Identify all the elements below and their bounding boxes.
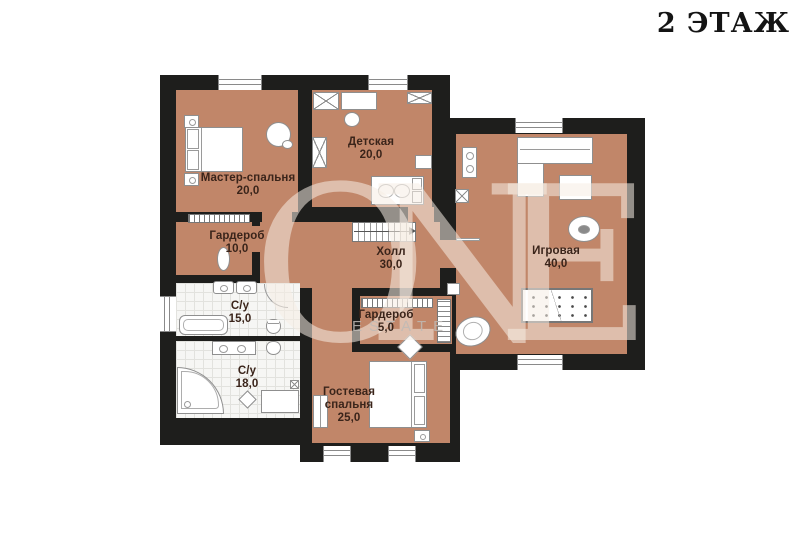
sofa-seat	[520, 140, 590, 150]
duct-icon	[455, 189, 469, 203]
window	[218, 75, 262, 90]
sink-bowl	[237, 345, 246, 353]
pillow	[412, 178, 422, 190]
window	[160, 296, 176, 332]
stair-arrow-icon	[409, 227, 416, 235]
bed-icon	[371, 176, 424, 205]
window	[388, 446, 416, 462]
bed-icon	[185, 127, 243, 172]
bean-bag-fold	[460, 319, 485, 343]
door-opening-playroom	[440, 240, 456, 268]
room-name: Гардероб	[187, 230, 287, 243]
sink-icon	[213, 281, 234, 294]
room-area: 15,0	[190, 313, 290, 326]
cushion	[578, 225, 590, 234]
room-name: С/у	[197, 365, 297, 378]
room-area: 30,0	[341, 259, 441, 272]
room-name: Холл	[341, 246, 441, 259]
page-title: 2 ЭТАЖ	[657, 8, 790, 39]
room-area: 40,0	[506, 258, 606, 271]
window	[323, 446, 351, 462]
blanket	[378, 184, 394, 198]
door-opening-su15	[262, 275, 288, 283]
window	[515, 118, 563, 133]
room-name: Игровая	[506, 245, 606, 258]
coffee-table-icon	[559, 175, 592, 200]
door-leaf	[456, 238, 480, 241]
room-area: 10,0	[187, 243, 287, 256]
door-opening-master	[262, 212, 292, 222]
room-name: Мастер-спальня	[188, 172, 308, 185]
pillow	[414, 364, 425, 393]
room-area: 20,0	[188, 185, 308, 198]
door-opening-detskaya	[408, 207, 434, 222]
wardrobe-icon	[313, 92, 339, 110]
room-label-guest: Гостевая спальня 25,0	[310, 386, 388, 426]
window	[368, 75, 408, 90]
sofa-icon	[517, 137, 593, 164]
room-label-su18: С/у 18,0	[197, 365, 297, 391]
room-area: 18,0	[197, 378, 297, 391]
cabinet-icon	[261, 390, 299, 413]
hanger-rack-icon	[188, 214, 250, 223]
sink-bowl	[220, 285, 228, 292]
pillow	[187, 150, 199, 170]
sofa-icon	[517, 163, 544, 197]
shelf-icon	[462, 147, 477, 178]
room-label-wardrobe5: Гардероб 5,0	[336, 309, 436, 335]
blanket	[201, 128, 242, 171]
room-label-hall: Холл 30,0	[341, 246, 441, 272]
room-name: Гардероб	[336, 309, 436, 322]
decor-circle	[466, 165, 474, 173]
room-label-wardrobe10: Гардероб 10,0	[187, 230, 287, 256]
shelf-icon	[437, 299, 451, 343]
pillow	[187, 129, 199, 149]
blanket	[394, 184, 410, 198]
pillow	[412, 191, 422, 203]
sink-icon	[236, 281, 257, 294]
billiard-table-icon	[521, 288, 593, 323]
egg-chair-icon	[568, 216, 600, 242]
drain	[184, 401, 191, 408]
ottoman-icon	[282, 140, 293, 149]
room-name: Детская	[321, 136, 421, 149]
wardrobe-icon	[407, 92, 432, 104]
staircase-icon	[352, 222, 416, 242]
room-label-su15: С/у 15,0	[190, 300, 290, 326]
floor-plan-page: { "title": "2 ЭТАЖ", "watermark": { "bra…	[0, 0, 805, 536]
cabinet-icon	[447, 283, 460, 295]
room-label-master: Мастер-спальня 20,0	[188, 172, 308, 198]
cabinet-icon	[341, 92, 377, 110]
sink-bowl	[219, 345, 228, 353]
window	[517, 355, 563, 370]
bidet-icon	[266, 341, 281, 355]
room-name: С/у	[190, 300, 290, 313]
chair-icon	[344, 112, 360, 127]
room-label-detskaya: Детская 20,0	[321, 136, 421, 162]
lamp-icon	[189, 119, 196, 126]
room-area: 25,0	[310, 412, 388, 425]
sink-icon	[212, 341, 256, 355]
room-label-igrovaya: Игровая 40,0	[506, 245, 606, 271]
room-area: 5,0	[336, 322, 436, 335]
room-area: 20,0	[321, 149, 421, 162]
stair-direction-line	[354, 231, 410, 232]
hanger-rack-icon	[361, 298, 433, 308]
pillow	[414, 396, 425, 425]
sink-bowl	[243, 285, 251, 292]
lamp-icon	[420, 434, 426, 440]
nightstand-icon	[414, 430, 430, 442]
decor-circle	[466, 152, 474, 160]
room-name: Гостевая спальня	[310, 386, 388, 412]
